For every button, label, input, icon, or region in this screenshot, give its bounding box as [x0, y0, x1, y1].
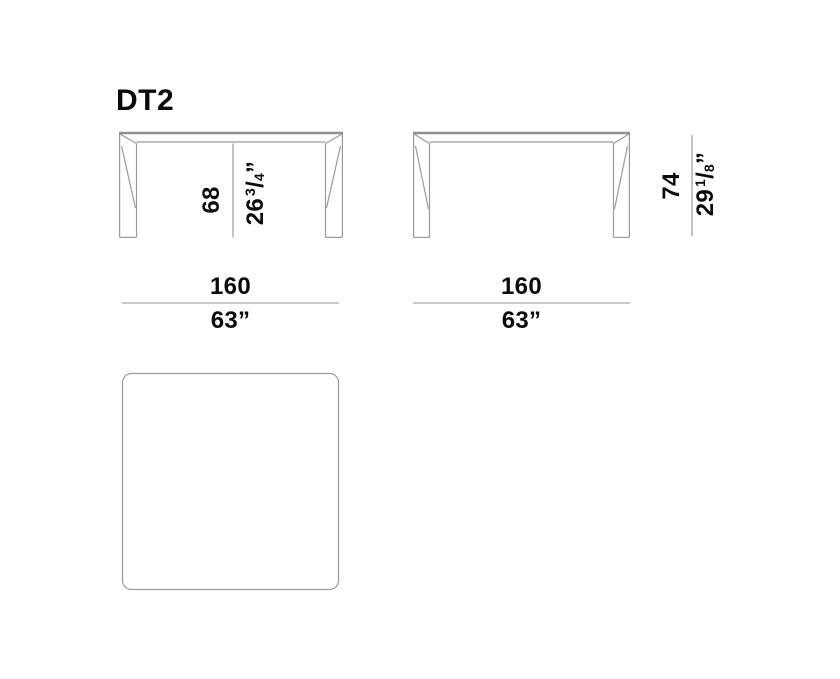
inches-whole: 29	[692, 189, 719, 216]
inch-mark: ”	[242, 161, 269, 173]
fraction-numerator: 1	[692, 179, 708, 187]
inch-mark: ”	[692, 152, 719, 164]
side-width-cm-label: 160	[501, 273, 542, 301]
fraction-slash: /	[242, 181, 269, 188]
dimension-spec-sheet: DT2	[0, 0, 840, 679]
front-clearance-cm-label: 68	[198, 186, 226, 213]
top-view-outline	[123, 374, 339, 590]
inches-whole: 26	[242, 198, 269, 225]
technical-drawing	[0, 0, 840, 679]
fraction-denominator: 8	[701, 164, 717, 172]
overall-height-cm-label: 74	[658, 172, 686, 199]
fraction-denominator: 4	[251, 173, 267, 181]
front-width-cm-label: 160	[210, 273, 251, 301]
overall-height-inches-label: 291/8”	[692, 152, 720, 216]
front-clearance-inches-label: 263/4”	[242, 161, 270, 225]
front-elevation-drawing	[119, 133, 343, 237]
fraction-slash: /	[692, 172, 719, 179]
side-width-inches-label: 63”	[502, 307, 542, 335]
side-elevation-drawing	[413, 133, 630, 237]
fraction-numerator: 3	[242, 188, 258, 196]
front-width-inches-label: 63”	[211, 307, 251, 335]
